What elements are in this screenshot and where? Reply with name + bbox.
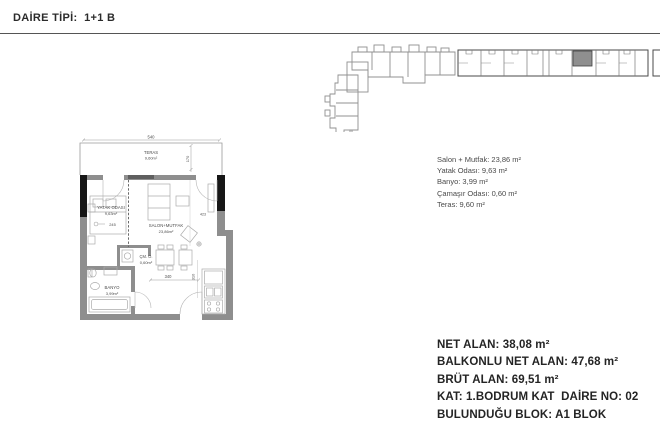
summary-balkonlu-net-alan: BALKONLU NET ALAN: 47,68 m² bbox=[437, 354, 638, 371]
floor-plan: 540 170 245 423 340 310 TERAS 9,60m² YAT… bbox=[70, 125, 245, 325]
dim-hall: 340 bbox=[165, 274, 173, 279]
armchair bbox=[181, 226, 202, 247]
label-banyo: BANYO bbox=[104, 285, 120, 290]
label-yatak: YATAK ODASI bbox=[97, 205, 125, 210]
dim-teras-depth: 170 bbox=[185, 155, 190, 162]
label-yatak-area: 9,63m² bbox=[105, 211, 118, 216]
label-teras: TERAS bbox=[144, 150, 158, 155]
summary-kat-daire: KAT: 1.BODRUM KAT DAİRE NO: 02 bbox=[437, 389, 638, 406]
kitchen-counter bbox=[202, 269, 225, 314]
site-plan-map bbox=[325, 45, 455, 132]
block-plan-map bbox=[458, 50, 660, 76]
room-area-item: Çamaşır Odası: 0,60 m² bbox=[437, 188, 521, 199]
unit-summary: NET ALAN: 38,08 m² BALKONLU NET ALAN: 47… bbox=[437, 337, 638, 424]
dining-set bbox=[156, 245, 192, 270]
label-salon: SALON+MUTFAK bbox=[149, 223, 184, 228]
dim-yatak: 245 bbox=[109, 222, 116, 227]
room-area-list: Salon + Mutfak: 23,86 m² Yatak Odası: 9,… bbox=[437, 154, 521, 210]
label-salon-area: 23,86m² bbox=[159, 229, 174, 234]
label-banyo-area: 3,99m² bbox=[106, 291, 119, 296]
dim-salon: 423 bbox=[200, 213, 206, 217]
unit-highlight bbox=[573, 51, 592, 66]
page-title: DAİRE TİPİ: 1+1 B bbox=[13, 12, 115, 24]
room-area-item: Yatak Odası: 9,63 m² bbox=[437, 165, 521, 176]
dim-kitchen: 310 bbox=[191, 273, 196, 280]
label-cmo: ÇM. O. bbox=[140, 254, 153, 259]
label-teras-area: 9,60m² bbox=[145, 156, 158, 161]
plan-sheet: DAİRE TİPİ: 1+1 B bbox=[0, 0, 660, 434]
bed bbox=[88, 196, 126, 244]
room-area-item: Salon + Mutfak: 23,86 m² bbox=[437, 154, 521, 165]
summary-brut-alan: BRÜT ALAN: 69,51 m² bbox=[437, 372, 638, 389]
title-divider bbox=[0, 33, 660, 34]
key-plans bbox=[320, 40, 660, 132]
washing-machine bbox=[122, 250, 133, 262]
dim-teras-width: 540 bbox=[148, 135, 156, 140]
dimensions bbox=[82, 139, 221, 299]
summary-net-alan: NET ALAN: 38,08 m² bbox=[437, 337, 638, 354]
summary-blok: BULUNDUĞU BLOK: A1 BLOK bbox=[437, 407, 638, 424]
room-area-item: Teras: 9,60 m² bbox=[437, 199, 521, 210]
label-cmo-area: 0,60m² bbox=[140, 260, 153, 265]
room-area-item: Banyo: 3,99 m² bbox=[437, 176, 521, 187]
